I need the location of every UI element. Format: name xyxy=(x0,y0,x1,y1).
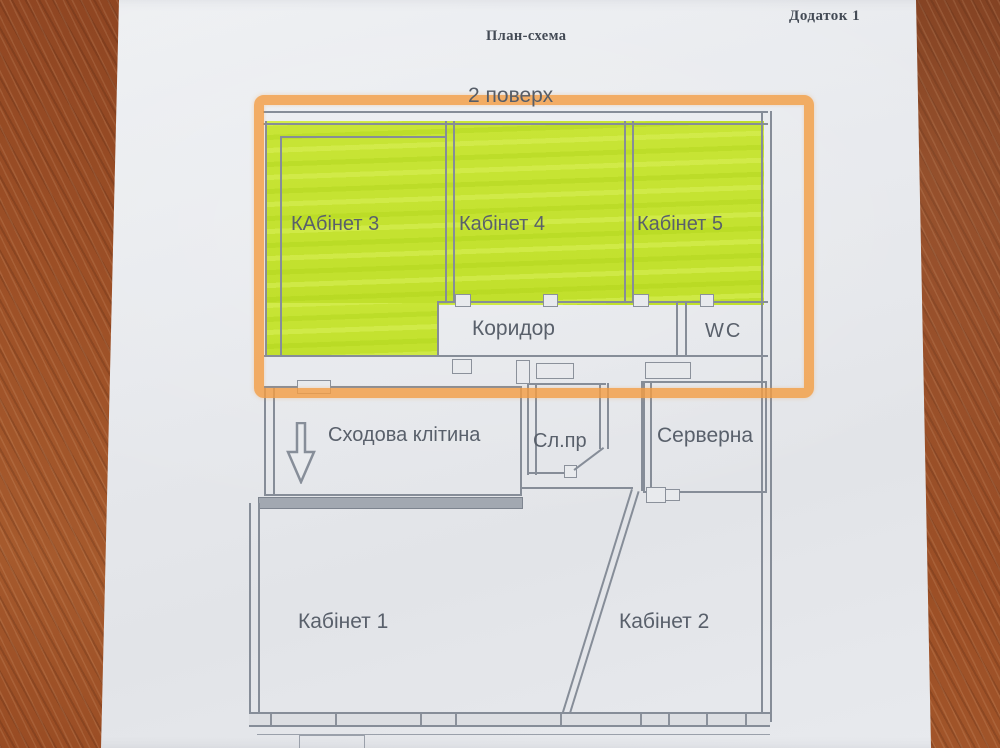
photo-scene: Додаток 1 План-схема 2 поверх xyxy=(0,0,1000,748)
room-label-kabinet1: Кабінет 1 xyxy=(298,610,388,634)
door-jamb xyxy=(665,489,680,501)
window-divider xyxy=(668,714,670,725)
room-label-server: Серверна xyxy=(657,424,753,448)
windowsill-rect xyxy=(299,735,365,748)
door-jamb xyxy=(516,360,530,384)
window-divider xyxy=(270,714,272,725)
room-label-stairwell: Сходова клітина xyxy=(328,424,480,447)
wall-kabinet2-diagonal xyxy=(560,489,640,721)
window-divider xyxy=(560,714,562,725)
window-divider xyxy=(455,714,457,725)
window-divider xyxy=(335,714,337,725)
window-divider xyxy=(745,714,747,725)
wall-stairwell-left-double xyxy=(264,386,275,494)
door-jamb xyxy=(646,487,666,503)
door-jamb xyxy=(536,363,574,379)
door-jamb xyxy=(452,359,472,374)
wall-service-bottom xyxy=(527,472,567,476)
wall-stairwell-bottom-thick xyxy=(258,497,523,509)
orange-marker-frame xyxy=(254,95,814,398)
paper-sheet: Додаток 1 План-схема 2 поверх xyxy=(0,0,1000,748)
appendix-label: Додаток 1 xyxy=(789,8,860,25)
door-jamb xyxy=(645,362,691,379)
wall-bottom-windows xyxy=(249,712,770,727)
window-divider xyxy=(706,714,708,725)
window-divider xyxy=(640,714,642,725)
wall-kabinet1-left xyxy=(249,503,260,722)
page-title: План-схема xyxy=(486,28,566,45)
wall-hall-top xyxy=(520,487,633,491)
floor-label: 2 поверх xyxy=(468,84,553,108)
down-arrow-icon xyxy=(284,422,318,484)
room-label-kabinet2: Кабінет 2 xyxy=(619,610,709,634)
room-label-service: Сл.пр xyxy=(533,430,587,453)
window-divider xyxy=(420,714,422,725)
